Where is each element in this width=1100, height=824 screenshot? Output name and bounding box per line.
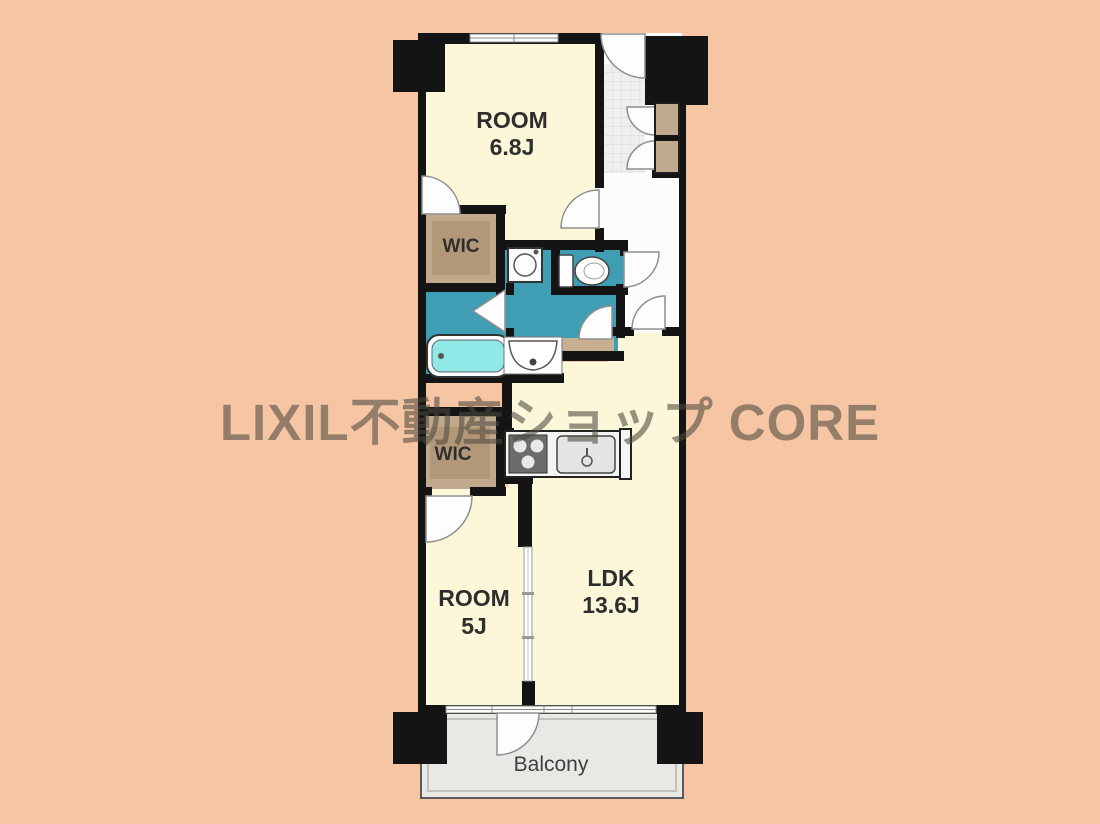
pillar-bottom-left [393, 712, 447, 764]
pillar-bottom-right [657, 712, 703, 764]
ldk-floor-main [508, 362, 680, 708]
wall-segment [470, 487, 506, 496]
balcony-label: Balcony [514, 753, 589, 776]
room-6-8j-label: ROOM [476, 107, 548, 133]
wic-2-label: WIC [435, 444, 472, 465]
room-5j-label: ROOM [438, 585, 510, 611]
room-5j-size: 5J [461, 613, 487, 639]
bathtub [427, 335, 509, 377]
shoe-cabinet [655, 103, 679, 173]
washbasin [504, 337, 562, 374]
room-6-8j-size: 6.8J [490, 134, 535, 160]
window-ldk [544, 706, 656, 713]
wall-segment [418, 283, 504, 292]
ldk-label: LDK [587, 565, 635, 591]
floorplan-image: ROOM 6.8J WIC WIC ROOM 5J LDK 13.6J Balc… [0, 0, 1100, 824]
wall-segment [418, 487, 432, 496]
kitchen-sink [557, 436, 615, 473]
step-threshold [558, 338, 614, 353]
kitchen-stove [509, 435, 547, 473]
kitchen-counter [505, 429, 631, 479]
toilet [559, 255, 609, 287]
pillar-top-right [645, 36, 708, 105]
wall-segment [496, 407, 505, 496]
wall-segment [556, 351, 624, 361]
window-top [470, 34, 558, 42]
ldk-size: 13.6J [582, 592, 640, 618]
sliding-partition [522, 547, 534, 681]
wic-1-label: WIC [443, 236, 480, 257]
wall-segment [610, 327, 634, 336]
floorplan-drawing: ROOM 6.8J WIC WIC ROOM 5J LDK 13.6J Balc… [0, 0, 1100, 824]
wall-segment [679, 100, 686, 712]
window-room5j [446, 706, 492, 713]
wall-segment [518, 471, 532, 547]
balcony-sliding-door [492, 706, 546, 713]
washing-machine [508, 248, 542, 282]
wall-segment [418, 407, 506, 416]
wall-segment [595, 44, 604, 188]
wall-segment [506, 283, 514, 295]
